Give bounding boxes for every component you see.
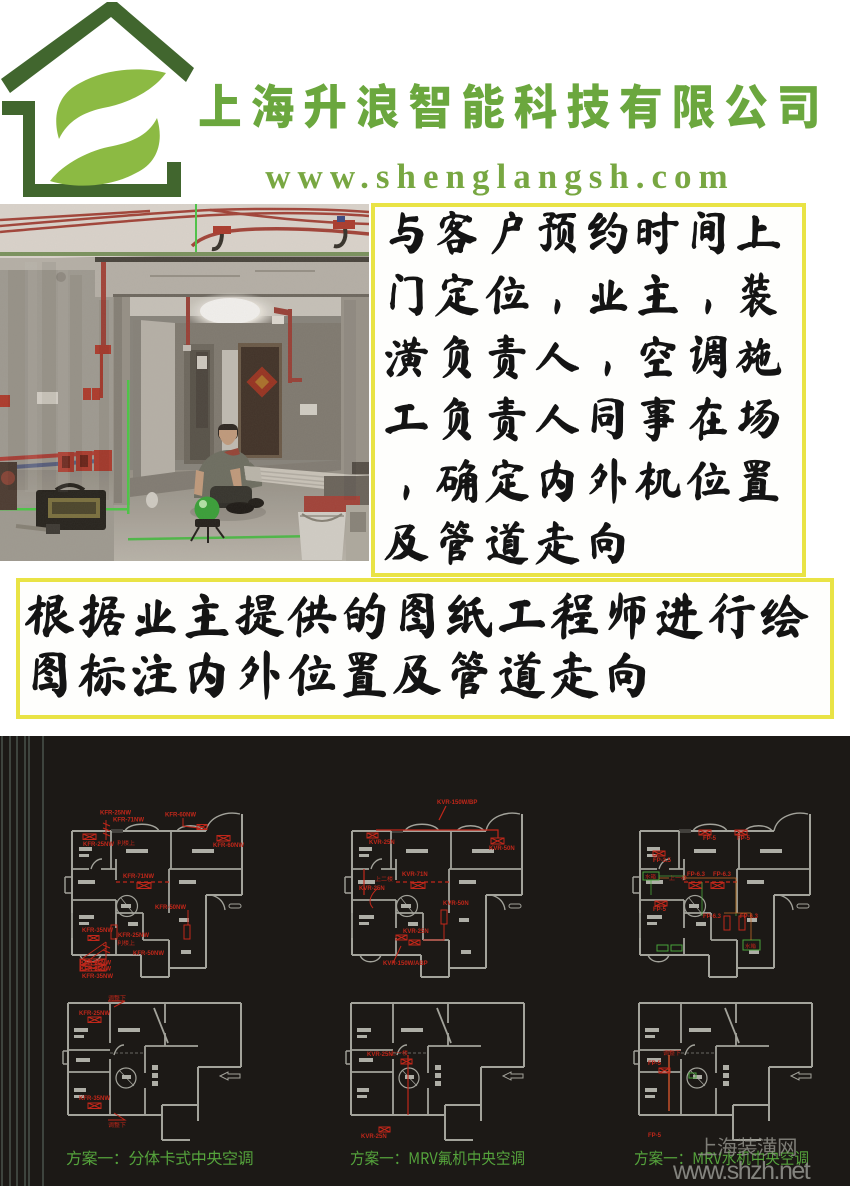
svg-text:KVR-25N: KVR-25N [359, 886, 385, 892]
svg-text:www.shzh.net: www.shzh.net [672, 1157, 811, 1185]
svg-text:FP-6.3: FP-6.3 [687, 872, 706, 878]
svg-text:KFR-60NW: KFR-60NW [165, 813, 196, 819]
svg-text:KFR-25NW: KFR-25NW [79, 1011, 110, 1017]
svg-text:KFR-71NW: KFR-71NW [123, 874, 154, 880]
svg-text:KVR-25N: KVR-25N [367, 1052, 393, 1058]
svg-text:KFR-35NW: KFR-35NW [79, 1096, 110, 1102]
svg-text:KFR-35NW: KFR-35NW [82, 974, 113, 980]
svg-text:KVR-150W/ABP: KVR-150W/ABP [383, 961, 428, 967]
svg-text:KFR-25NW: KFR-25NW [118, 933, 149, 939]
svg-text:KFR-50NW: KFR-50NW [133, 951, 164, 957]
svg-text:KFR-25NW: KFR-25NW [80, 967, 111, 973]
svg-text:KVR-25N: KVR-25N [369, 840, 395, 846]
svg-text:KFR-50NW: KFR-50NW [155, 905, 186, 911]
svg-text:FP-3.5: FP-3.5 [653, 858, 672, 864]
svg-text:FP-5: FP-5 [648, 1061, 662, 1067]
svg-text:KVR-25N: KVR-25N [361, 1134, 387, 1140]
svg-text:KVR-71N: KVR-71N [402, 872, 428, 878]
svg-text:FP-5: FP-5 [703, 836, 717, 842]
svg-text:FP-5: FP-5 [653, 907, 667, 913]
svg-text:KFR-71NW: KFR-71NW [113, 818, 144, 824]
svg-text:KVR-25N: KVR-25N [403, 929, 429, 935]
svg-text:FP-5: FP-5 [737, 836, 751, 842]
svg-text:FP-5: FP-5 [648, 1133, 662, 1139]
svg-text:KFR-60NW: KFR-60NW [213, 843, 244, 849]
svg-text:FP-6.3: FP-6.3 [713, 872, 732, 878]
svg-text:KFR-25NW: KFR-25NW [83, 842, 114, 848]
svg-text:FP-6.3: FP-6.3 [740, 914, 759, 920]
svg-text:KVR-50N: KVR-50N [489, 846, 515, 852]
svg-text:FP-6.3: FP-6.3 [703, 914, 722, 920]
svg-text:KVR-150W/BP: KVR-150W/BP [437, 800, 477, 806]
svg-text:KFR-35NW: KFR-35NW [82, 928, 113, 934]
svg-text:KFR-25NW: KFR-25NW [100, 811, 131, 817]
svg-text:KVR-50N: KVR-50N [443, 901, 469, 907]
